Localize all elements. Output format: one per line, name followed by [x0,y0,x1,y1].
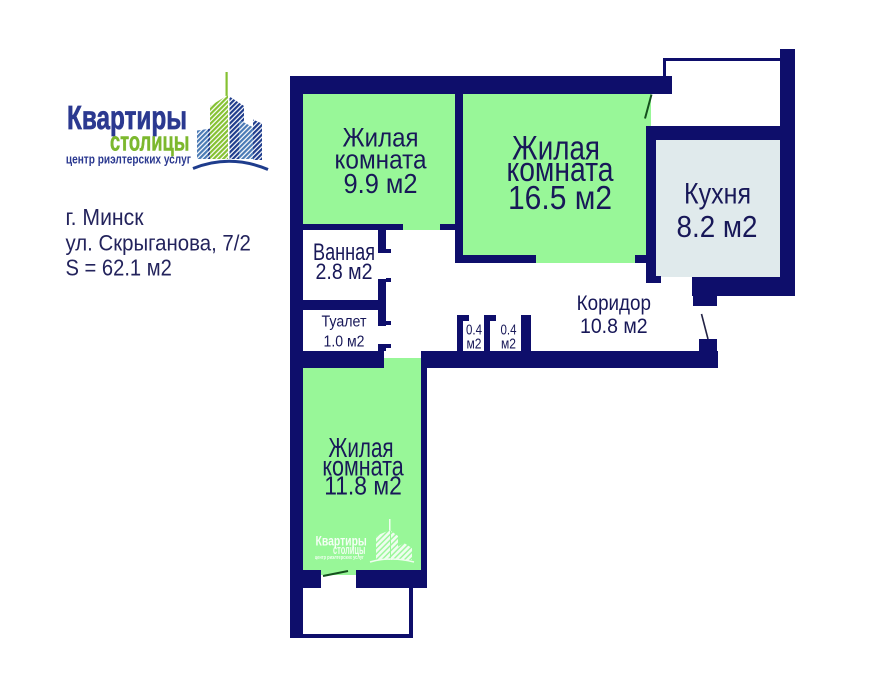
svg-text:11.8 м2: 11.8 м2 [324,471,402,501]
svg-text:S = 62.1 м2: S = 62.1 м2 [66,255,172,281]
svg-text:м2: м2 [501,337,516,353]
svg-text:г. Минск: г. Минск [66,204,145,230]
svg-text:м2: м2 [467,337,482,353]
svg-text:2.8 м2: 2.8 м2 [316,259,373,284]
svg-text:Кухня: Кухня [684,178,751,211]
svg-text:9.9 м2: 9.9 м2 [344,168,418,199]
svg-text:10.8 м2: 10.8 м2 [580,313,648,338]
svg-text:Коридор: Коридор [577,290,651,315]
svg-text:центр риэлтерских услуг: центр риэлтерских услуг [315,555,365,561]
svg-text:Туалет: Туалет [322,314,367,331]
svg-text:центр риэлтерских услуг: центр риэлтерских услуг [66,152,191,167]
svg-text:1.0 м2: 1.0 м2 [324,334,365,351]
svg-text:ул. Скрыганова, 7/2: ул. Скрыганова, 7/2 [66,230,251,255]
svg-text:8.2 м2: 8.2 м2 [677,209,758,244]
svg-text:16.5 м2: 16.5 м2 [508,179,612,216]
